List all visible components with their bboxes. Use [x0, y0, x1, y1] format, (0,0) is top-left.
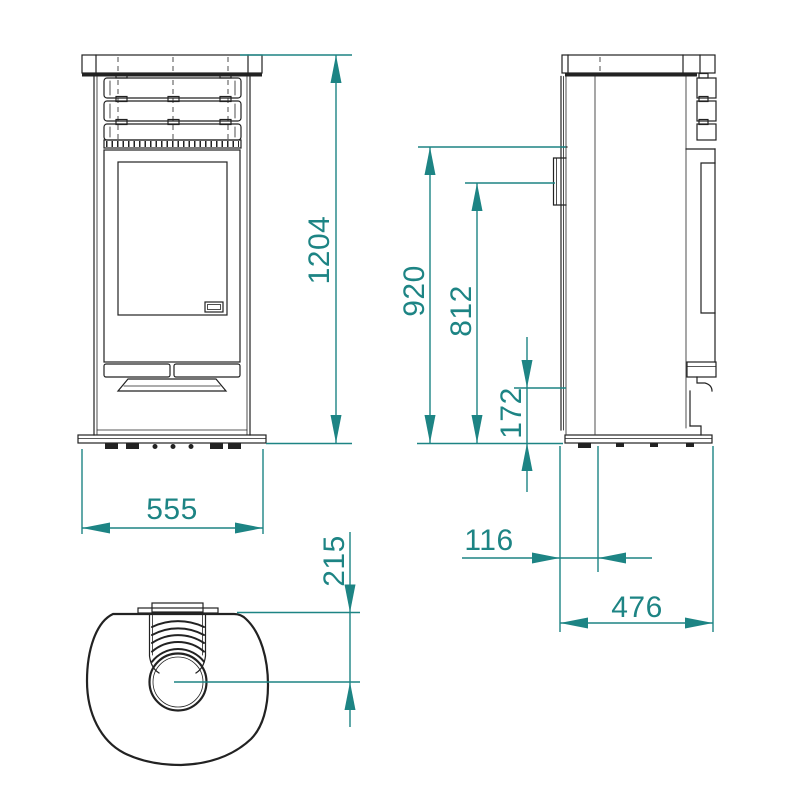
- top-flue-cap: [138, 603, 218, 613]
- front-view: [78, 55, 266, 449]
- dim-rear-inlet-height: 172: [495, 337, 566, 492]
- door-handle: [205, 302, 223, 312]
- dim-flue-center-height-value: 812: [445, 285, 478, 337]
- side-front-profile: [686, 77, 716, 436]
- top-view: [87, 603, 268, 765]
- dim-depth-value: 476: [611, 591, 663, 624]
- dim-flue-top-height: 920: [398, 147, 566, 443]
- dim-rear-inlet-height-value: 172: [495, 387, 528, 439]
- side-door-glass-edge: [701, 163, 715, 313]
- dim-overall-height-value: 1204: [303, 216, 336, 285]
- dim-rear-offset-value: 116: [464, 524, 513, 557]
- door-glass: [118, 162, 227, 315]
- dim-overall-width-value: 555: [146, 493, 198, 526]
- technical-drawing-canvas: 1204 555 920 812: [0, 0, 800, 800]
- dim-flue-top-height-value: 920: [398, 265, 431, 317]
- front-top-plate: [82, 55, 262, 77]
- side-back-wall: [561, 77, 595, 435]
- side-base: [565, 435, 712, 448]
- side-front-louvers: [697, 74, 716, 141]
- dim-depth: 476: [560, 446, 713, 632]
- top-rear-channel: [150, 614, 206, 673]
- side-view: [554, 55, 717, 448]
- front-feet: [105, 443, 241, 449]
- dim-overall-width: 555: [82, 449, 263, 534]
- top-body-outline: [87, 614, 268, 765]
- front-door: [104, 150, 240, 362]
- stove-dimension-drawing-page: 1204 555 920 812: [0, 0, 800, 800]
- front-lower-section: [78, 364, 266, 449]
- dim-flue-from-back-value: 215: [318, 535, 351, 587]
- side-top-plate: [562, 55, 715, 77]
- front-louver-grille: [104, 74, 241, 149]
- side-rear-flue-outlet: [554, 147, 568, 205]
- dim-overall-height: 1204: [240, 55, 352, 443]
